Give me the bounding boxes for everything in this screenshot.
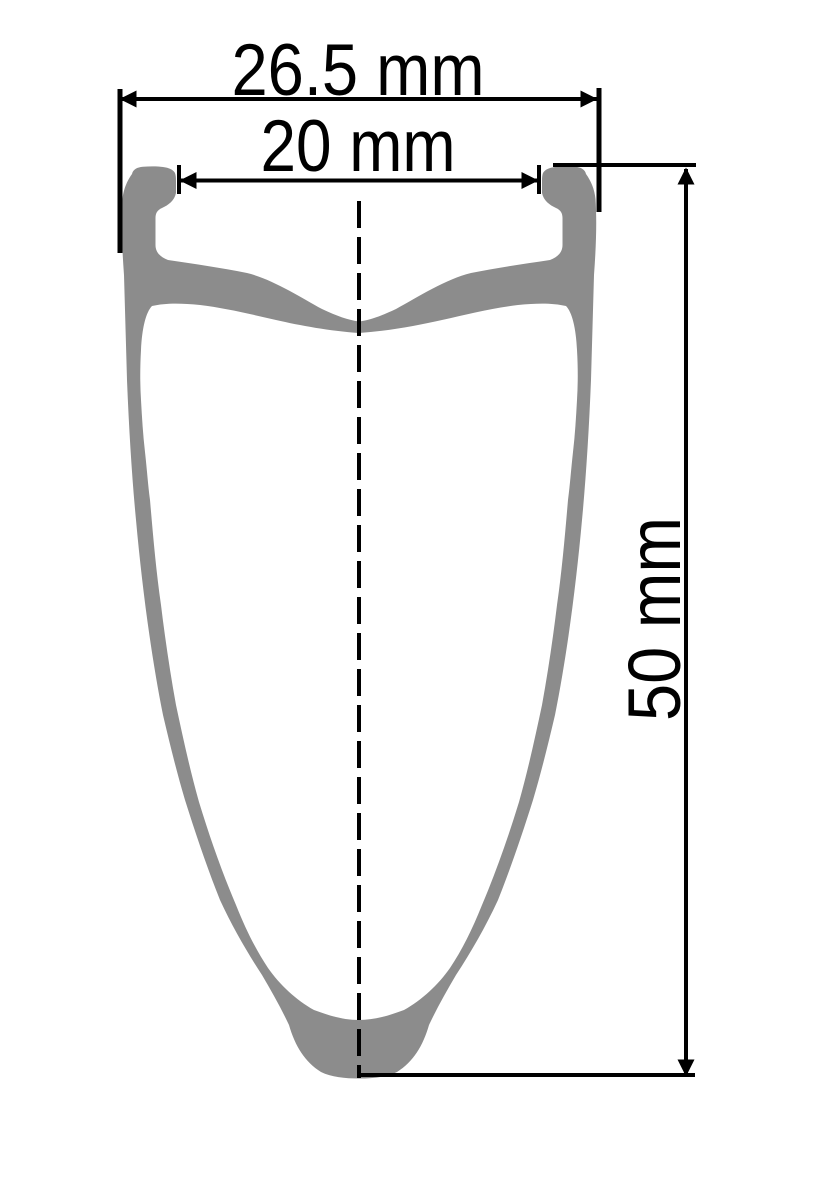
svg-text:50 mm: 50 mm <box>613 517 696 721</box>
svg-text:26.5 mm: 26.5 mm <box>232 30 485 111</box>
svg-text:20 mm: 20 mm <box>261 106 456 187</box>
